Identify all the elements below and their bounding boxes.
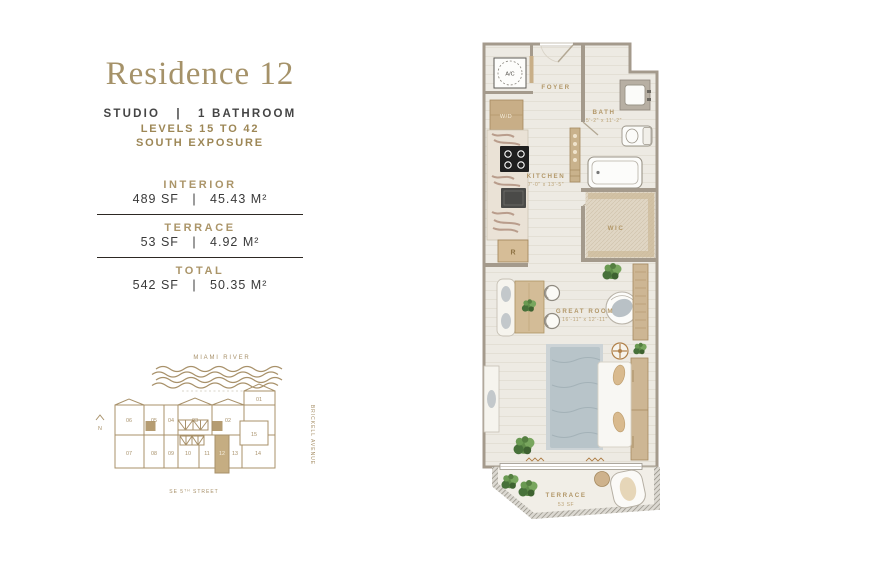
north-label: N bbox=[98, 426, 102, 432]
levels-label: LEVELS 15 TO 42 bbox=[95, 123, 305, 135]
ceiling-fan-icon bbox=[612, 343, 628, 359]
unit-number: 01 bbox=[256, 397, 262, 403]
bath-label: BATH bbox=[592, 109, 615, 116]
unit-number: 09 bbox=[168, 451, 174, 457]
unit-number: 08 bbox=[151, 451, 157, 457]
window-seat bbox=[484, 366, 499, 432]
total-area-label: TOTAL bbox=[95, 265, 305, 277]
page-title: Residence 12 bbox=[75, 56, 325, 93]
great-room-label: GREAT ROOM bbox=[556, 308, 614, 315]
ac-closet: A/C bbox=[494, 58, 526, 88]
divider-line bbox=[97, 257, 303, 258]
vanity-sink bbox=[625, 85, 645, 105]
floorplan-brochure-page: Residence 12 STUDIO | 1 BATHROOM LEVELS … bbox=[0, 0, 895, 572]
great-room-dims: 16'-11" x 12'-11" bbox=[562, 317, 608, 323]
unit-type-subtitle: STUDIO | 1 BATHROOM bbox=[95, 108, 305, 120]
pantry-shelf bbox=[570, 128, 580, 182]
terrace-area-sf: 53 SF bbox=[558, 502, 574, 508]
bathtub bbox=[588, 157, 642, 188]
wardrobe bbox=[631, 358, 648, 460]
unit-number: 02 bbox=[225, 418, 231, 424]
fridge-label: R bbox=[510, 250, 515, 257]
wic-label: WIC bbox=[608, 225, 625, 232]
floor-plan: A/C W/D R bbox=[470, 30, 695, 550]
unit-number: 06 bbox=[126, 418, 132, 424]
unit-number: 07 bbox=[126, 451, 132, 457]
unit-number: 14 bbox=[255, 451, 261, 457]
key-plan: MIAMI RIVER bbox=[82, 333, 322, 513]
terrace-area-label: TERRACE bbox=[95, 222, 305, 234]
north-arrow-icon: N bbox=[96, 415, 104, 432]
terrace-label: TERRACE bbox=[545, 492, 586, 499]
river-waves-icon bbox=[152, 367, 282, 389]
unit-number-highlighted: 12 bbox=[219, 451, 225, 457]
terrace-area-value: 53 SF | 4.92 M² bbox=[95, 235, 305, 249]
unit-number: 11 bbox=[204, 451, 210, 457]
unit-number: 15 bbox=[251, 432, 257, 438]
se-5th-street-label: SE 5TH STREET bbox=[169, 488, 219, 495]
divider-line bbox=[97, 214, 303, 215]
cooktop bbox=[500, 146, 529, 172]
right-cabinetry bbox=[631, 264, 648, 460]
dining-chair bbox=[545, 314, 560, 329]
interior-area-label: INTERIOR bbox=[95, 179, 305, 191]
bath-dims: 5'-2" x 11'-2" bbox=[586, 118, 622, 124]
foyer-label: FOYER bbox=[541, 84, 570, 91]
wd-label: W/D bbox=[500, 114, 512, 120]
interior-area-value: 489 SF | 45.43 M² bbox=[95, 192, 305, 206]
dining-chair bbox=[545, 286, 560, 301]
washer-dryer: W/D bbox=[490, 100, 523, 130]
unit-number: 13 bbox=[232, 451, 238, 457]
unit-number: 10 bbox=[185, 451, 191, 457]
brickell-avenue-label: BRICKELL AVENUE bbox=[309, 405, 315, 465]
info-panel: Residence 12 STUDIO | 1 BATHROOM LEVELS … bbox=[95, 0, 305, 330]
building-footprint bbox=[115, 384, 275, 473]
unit-number: 05 bbox=[151, 418, 157, 424]
miami-river-label: MIAMI RIVER bbox=[193, 355, 250, 361]
kitchen-label: KITCHEN bbox=[527, 173, 566, 180]
side-table bbox=[595, 472, 610, 487]
exposure-label: SOUTH EXPOSURE bbox=[95, 137, 305, 149]
ac-label: A/C bbox=[505, 72, 514, 78]
unit-number: 03 bbox=[192, 418, 198, 424]
core-block bbox=[213, 421, 223, 431]
closet-door bbox=[530, 56, 534, 83]
kitchen-dims: 7'-0" x 13'-5" bbox=[528, 182, 564, 188]
total-area-value: 542 SF | 50.35 M² bbox=[95, 278, 305, 292]
unit-number: 04 bbox=[168, 418, 174, 424]
toilet bbox=[622, 126, 652, 146]
